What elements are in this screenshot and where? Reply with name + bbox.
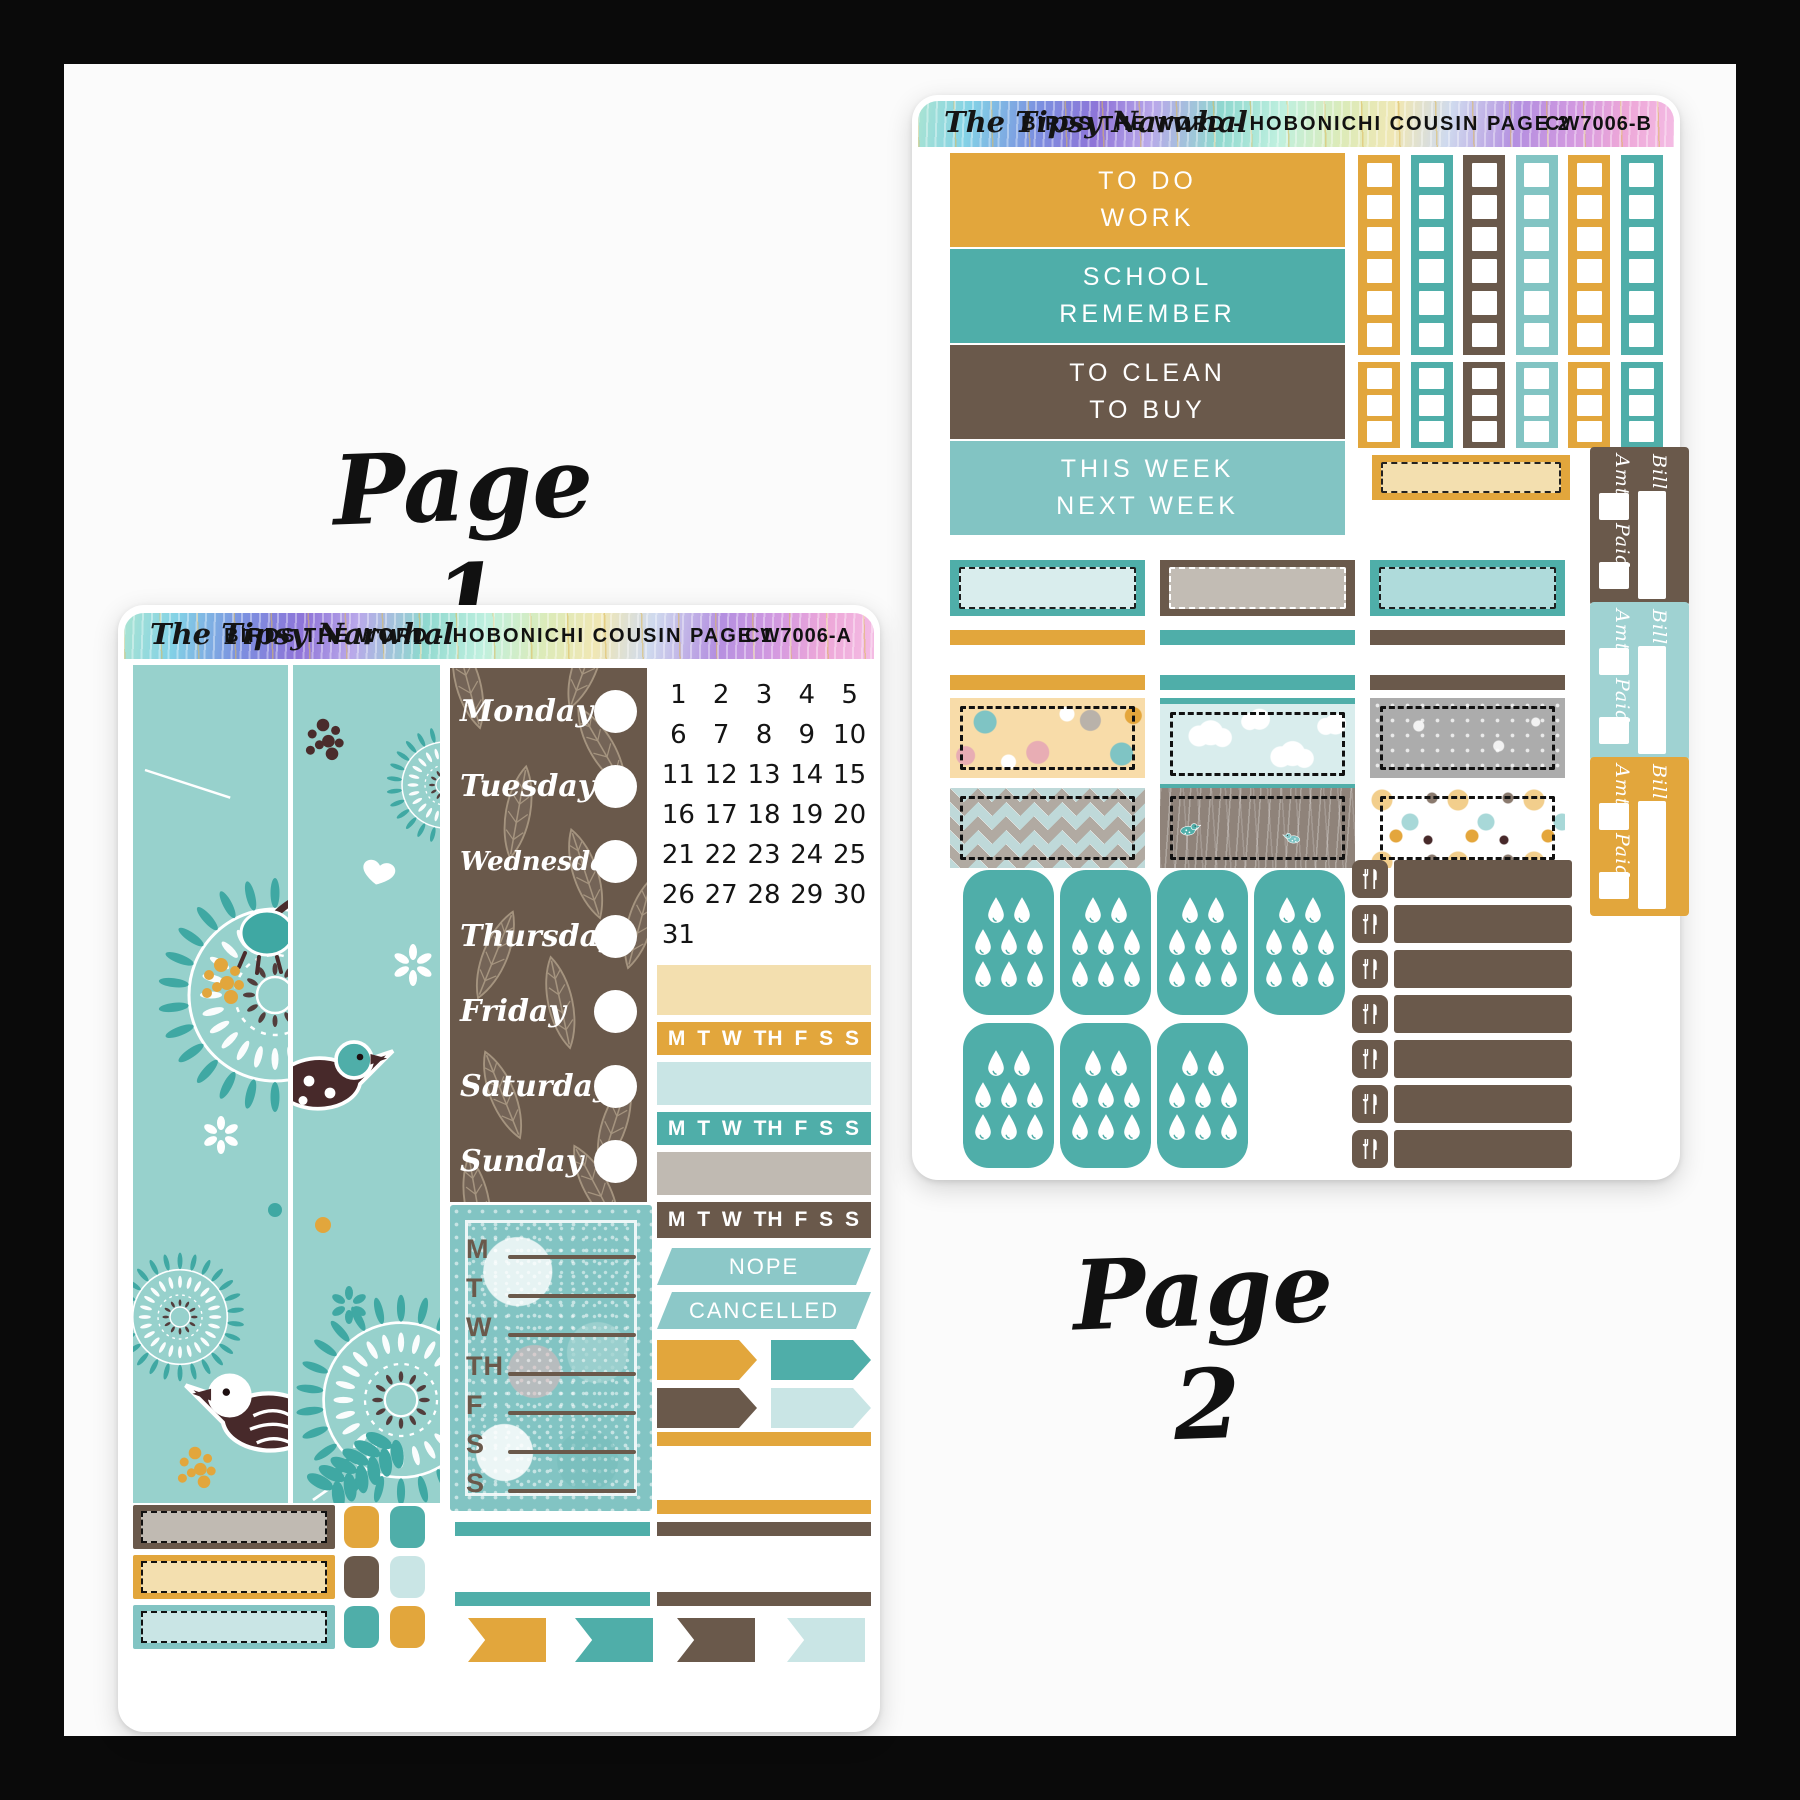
water-drop-icon [1302,896,1324,926]
checkbox [1472,259,1497,283]
weekday-row: Tuesday [450,749,647,824]
hydrate-tracker-sticker [1060,1023,1151,1168]
washi-label-box [133,1605,335,1649]
water-drop-icon [998,928,1020,958]
habit-day-letter: M [668,1117,687,1141]
water-drop-icon [1121,928,1143,958]
date-number: 14 [785,760,828,790]
water-drop-icon [1121,1081,1143,1111]
water-drop-icon [972,1113,994,1143]
bill-amt-paid-column: Amt.Paid [1597,454,1631,599]
habit-day-letter: F [794,1117,808,1141]
habit-day-letter: M [668,1208,687,1232]
meal-icon-tab [1352,860,1388,898]
habit-day-letter: W [722,1208,743,1232]
weekday-label: Monday [450,694,593,729]
bill-column: Bill [1636,454,1668,599]
water-drop-icon [972,960,994,990]
arrow-flag-sticker [657,1340,757,1380]
category-label-block: TO DOWORK [950,153,1345,247]
category-label-block: TO CLEANTO BUY [950,345,1345,439]
weekday-label: Thursday [450,919,617,954]
water-drop-icon [1095,1113,1117,1143]
date-number: 24 [785,840,828,870]
checkbox [1629,291,1654,315]
label-strip [657,1152,871,1195]
water-drop-icon [1276,896,1298,926]
habit-day-letter: W [722,1027,743,1051]
washi-label-box [1160,560,1355,616]
weekly-list-row: M [466,1231,636,1265]
thin-strip-sticker [657,1432,871,1446]
meal-label-bar [1394,950,1572,988]
checkbox-column-sticker [1621,155,1663,355]
bill-label: Bill [1636,454,1668,488]
water-drop-icon [1024,928,1046,958]
corner-square-sticker [344,1606,379,1648]
habit-day-letter: S [845,1117,860,1141]
checkbox [1577,195,1602,219]
weekly-list-row: F [466,1387,636,1421]
date-number: 29 [785,880,828,910]
fork-knife-icon [1358,1137,1382,1161]
water-drop-icon [1205,1049,1227,1079]
checkbox-column-sticker [1516,155,1558,355]
checkbox [1629,163,1654,187]
water-drop-icon [1289,928,1311,958]
checkbox [1577,291,1602,315]
meal-icon-tab [1352,1040,1388,1078]
date-number: 8 [743,720,786,750]
weekly-list-row: T [466,1270,636,1304]
water-drop-icon [1069,960,1091,990]
checkbox [1524,163,1549,187]
checkbox-column-sticker [1568,362,1610,448]
checkbox [1419,368,1444,389]
water-drop-icon [985,896,1007,926]
weekday-row: Saturday [450,1049,647,1124]
date-number: 16 [657,800,700,830]
water-drop-icon [1166,1081,1188,1111]
weekly-day-letter: F [466,1390,508,1421]
hydrate-tracker-sticker [963,870,1054,1015]
water-drop-icon [1192,928,1214,958]
checkbox [1367,421,1392,442]
peach-floral-washi-sticker [950,698,1145,778]
category-label: WORK [1101,204,1195,233]
water-drop-icon [1166,928,1188,958]
checkbox [1629,421,1654,442]
water-drop-icon [1218,928,1240,958]
checkbox [1419,421,1444,442]
water-drop-icon [1095,928,1117,958]
water-drop-icon [1179,896,1201,926]
checkbox [1419,195,1444,219]
amount-field [1599,493,1629,520]
drop-row [972,960,1046,990]
bill-column: Bill [1636,764,1668,909]
weekday-label: Tuesday [450,769,595,804]
washi-label-box [133,1505,335,1549]
checkbox [1367,323,1392,347]
checkbox [1524,227,1549,251]
date-number: 31 [657,920,700,950]
weekly-list-row: S [466,1465,636,1499]
water-drop-icon [1263,928,1285,958]
date-number: 3 [743,680,786,710]
thin-strip-sticker [950,630,1145,645]
water-drop-icon [998,928,1020,958]
water-drop-icon [1024,928,1046,958]
weekly-day-letter: W [466,1312,508,1343]
bill-tracker-sticker: Amt.PaidBill [1590,757,1689,916]
checkbox [1472,227,1497,251]
date-number: 5 [828,680,871,710]
thin-strip-sticker [1370,630,1565,645]
category-label-block: SCHOOLREMEMBER [950,249,1345,343]
fork-knife-icon [1358,1047,1382,1071]
water-drop-icon [1108,1049,1130,1079]
checkbox-column-sticker [1516,362,1558,448]
date-number: 1 [657,680,700,710]
water-drop-icon [1263,960,1285,990]
weekday-label: Sunday [450,1144,583,1179]
checkbox [1472,395,1497,416]
water-drop-icon [1192,960,1214,990]
bird-icon-small [1280,832,1302,846]
water-drop-icon [972,1113,994,1143]
meal-icon-tab [1352,950,1388,988]
weekday-row: Thursday [450,899,647,974]
drop-row [985,1049,1033,1079]
checkbox-column-sticker [1411,155,1453,355]
weekday-label: Friday [450,994,566,1029]
water-drop-icon [998,1113,1020,1143]
hydrate-tracker-sticker [1157,870,1248,1015]
water-drop-icon [1179,896,1201,926]
habit-day-letter: W [722,1117,743,1141]
date-number: 4 [785,680,828,710]
polka-dots-washi-sticker [1370,788,1565,868]
weekday-column-sticker: MondayTuesdayWednesdayThursdayFridaySatu… [450,668,647,1202]
date-numbers-grid: 1234567891011121314151617181920212223242… [657,675,871,957]
checkbox-column-sticker [1358,155,1400,355]
water-drop-icon [1289,928,1311,958]
checkbox [1577,163,1602,187]
meal-icon-tab [1352,995,1388,1033]
amount-field [1599,648,1629,675]
habit-day-letter: M [668,1027,687,1051]
amt-label: Amt. [1597,764,1631,800]
water-drop-icon [1289,960,1311,990]
pennant-flag-sticker [677,1618,755,1662]
checkbox [1472,368,1497,389]
habit-day-letter: S [819,1027,834,1051]
water-drop-icon [1082,1049,1104,1079]
water-drop-icon [1205,1049,1227,1079]
sticker-sheet-page-1: The Tipsy Narwhal BIRDS THE WORD - HOBON… [118,605,880,1732]
water-drop-icon [1218,960,1240,990]
water-drop-icon [1024,960,1046,990]
date-number: 25 [828,840,871,870]
checkbox [1367,227,1392,251]
floral-strip-sticker [293,665,440,1503]
checkbox [1472,163,1497,187]
checkbox [1577,227,1602,251]
date-dot-circle [594,1065,637,1108]
amt-label: Amt. [1597,609,1631,645]
water-drop-icon [1069,928,1091,958]
checkbox [1419,259,1444,283]
water-drop-icon [1095,1081,1117,1111]
water-drop-icon [1263,960,1285,990]
date-dot-circle [594,990,637,1033]
water-drop-icon [1166,928,1188,958]
checkbox [1524,368,1549,389]
water-drop-icon [1095,960,1117,990]
water-drop-icon [1218,1081,1240,1111]
checkbox [1524,195,1549,219]
drop-row [1069,1081,1143,1111]
checkbox-column-sticker [1358,362,1400,448]
bird-icon-small [1178,822,1204,838]
checkbox [1367,368,1392,389]
habit-day-letter: S [819,1117,834,1141]
habit-day-letter: S [845,1027,860,1051]
write-line [508,1372,636,1376]
drop-row [1166,1113,1240,1143]
water-drop-icon [1315,960,1337,990]
water-drop-icon [1108,1049,1130,1079]
write-line [508,1411,636,1415]
water-drop-icon [1276,896,1298,926]
water-drop-icon [1302,896,1324,926]
drop-row [1069,1113,1143,1143]
bird-icon [1280,832,1302,846]
weekly-list-row: W [466,1309,636,1343]
weekday-label: Saturday [450,1069,610,1104]
sheet-code: CW7006-B [1545,113,1652,136]
drop-row [1082,896,1130,926]
checkbox [1419,323,1444,347]
category-label: TO BUY [1089,396,1206,425]
checkbox [1577,323,1602,347]
weekly-list-sticker: MTWTHFSS [450,1205,652,1511]
date-number: 18 [743,800,786,830]
fork-knife-icon [1358,1092,1382,1116]
water-drop-icon [1095,960,1117,990]
write-line [508,1489,636,1493]
water-drop-icon [1095,1081,1117,1111]
habit-day-letter: T [697,1208,711,1232]
water-drop-icon [1069,1081,1091,1111]
washi-label-box [1370,560,1565,616]
weekly-day-letter: S [466,1429,508,1460]
pennant-flag-sticker [468,1618,546,1662]
label-strip [657,1062,871,1105]
water-drop-icon [998,960,1020,990]
meal-label-bar [1394,1085,1572,1123]
checkbox [1419,291,1444,315]
drop-row [1263,928,1337,958]
amt-label: Amt. [1597,454,1631,490]
checkbox [1367,291,1392,315]
water-drop-icon [985,896,1007,926]
date-number: 6 [657,720,700,750]
thin-strip-sticker [657,1500,871,1514]
habit-day-letter: T [697,1027,711,1051]
paid-field [1599,562,1629,589]
gray-floral-washi-sticker [1370,698,1565,778]
water-drop-icon [1024,1113,1046,1143]
washi-label-box [950,560,1145,616]
bill-label: Bill [1636,609,1668,643]
hydrate-tracker-sticker [1060,870,1151,1015]
checkbox [1524,259,1549,283]
washi-label-inner [959,567,1136,609]
water-drop-icon [985,1049,1007,1079]
bill-field [1638,646,1666,754]
corner-square-sticker [390,1506,425,1548]
drop-row [1069,928,1143,958]
write-line [508,1333,636,1337]
cancelled-flag-sticker: CANCELLED [657,1292,871,1329]
water-drop-icon [1205,896,1227,926]
checkbox [1577,421,1602,442]
date-number: 12 [700,760,743,790]
washi-label-box [133,1555,335,1599]
habit-day-letter: TH [754,1117,784,1141]
date-number: 19 [785,800,828,830]
checkbox [1367,195,1392,219]
thin-strip-sticker [1160,675,1355,690]
drop-row [972,928,1046,958]
checkbox-column-sticker [1463,362,1505,448]
fork-knife-icon [1358,957,1382,981]
date-number: 2 [700,680,743,710]
water-drop-icon [972,1081,994,1111]
bill-label: Bill [1636,764,1668,798]
water-drop-icon [1082,1049,1104,1079]
checkbox [1629,395,1654,416]
drop-row [1069,960,1143,990]
weekly-day-letter: T [466,1273,508,1304]
chevron-washi-sticker [950,788,1145,868]
date-number: 21 [657,840,700,870]
checkbox-column-sticker [1411,362,1453,448]
drop-row [1179,1049,1227,1079]
date-number: 26 [657,880,700,910]
date-number: 23 [743,840,786,870]
checkbox [1629,195,1654,219]
meal-icon-tab [1352,1085,1388,1123]
date-dot-circle [594,915,637,958]
washi-label-box [1372,455,1570,500]
hydrate-tracker-sticker [1254,870,1345,1015]
corner-square-sticker [344,1556,379,1598]
checkbox [1577,395,1602,416]
date-dot-circle [594,1140,637,1183]
checkbox [1419,395,1444,416]
water-drop-icon [1166,1081,1188,1111]
date-number: 13 [743,760,786,790]
checkbox [1419,227,1444,251]
checkbox [1472,323,1497,347]
arrow-flag-sticker [771,1388,871,1428]
water-drop-icon [1192,1081,1214,1111]
water-drop-icon [1289,960,1311,990]
water-drop-icon [1095,1113,1117,1143]
date-number: 7 [700,720,743,750]
write-line [508,1450,636,1454]
category-label: NEXT WEEK [1056,492,1239,521]
water-drop-icon [1024,1081,1046,1111]
floral-pattern [133,665,288,1503]
write-line [508,1294,636,1298]
water-drop-icon [1218,1113,1240,1143]
meal-icon-tab [1352,1130,1388,1168]
fork-knife-icon [1358,912,1382,936]
meal-label-bar [1394,905,1572,943]
water-drop-icon [972,1081,994,1111]
washi-label-inner [1381,462,1561,493]
water-drop-icon [1069,1113,1091,1143]
weekly-day-letter: TH [466,1351,508,1382]
checkbox [1577,259,1602,283]
water-drop-icon [1121,928,1143,958]
date-number: 22 [700,840,743,870]
drop-row [1263,960,1337,990]
habit-tracker-strip: MTWTHFSS [657,1202,871,1238]
drop-row [1166,928,1240,958]
habit-day-letter: T [697,1117,711,1141]
holographic-header-strip: The Tipsy Narwhal BIRDS THE WORD - HOBON… [124,613,874,659]
water-drop-icon [1011,896,1033,926]
checkbox-column-sticker [1463,155,1505,355]
corner-square-sticker [390,1556,425,1598]
washi-label-inner [141,1511,327,1543]
washi-label-inner [141,1611,327,1643]
water-drop-icon [1192,960,1214,990]
bill-tracker-sticker: Amt.PaidBill [1590,602,1689,761]
habit-day-letter: TH [754,1027,784,1051]
bill-field [1638,491,1666,599]
weekly-list-row: TH [466,1348,636,1382]
water-drop-icon [972,928,994,958]
thin-strip-sticker [455,1592,650,1606]
checkbox [1367,163,1392,187]
water-drop-icon [1179,1049,1201,1079]
date-dot-circle [594,690,637,733]
water-drop-icon [1069,928,1091,958]
water-drop-icon [998,1081,1020,1111]
fork-knife-icon [1358,867,1382,891]
arrow-flag-sticker [657,1388,757,1428]
drop-row [1082,1049,1130,1079]
water-drop-icon [1011,1049,1033,1079]
water-drop-icon [1179,1049,1201,1079]
paid-label: Paid [1597,523,1631,559]
water-drop-icon [1011,896,1033,926]
category-label: SCHOOL [1083,263,1213,292]
drop-row [985,896,1033,926]
water-drop-icon [1095,928,1117,958]
checkbox-column-sticker [1621,362,1663,448]
checkbox [1524,323,1549,347]
paid-label: Paid [1597,678,1631,714]
checkbox [1629,227,1654,251]
water-drop-icon [1108,896,1130,926]
